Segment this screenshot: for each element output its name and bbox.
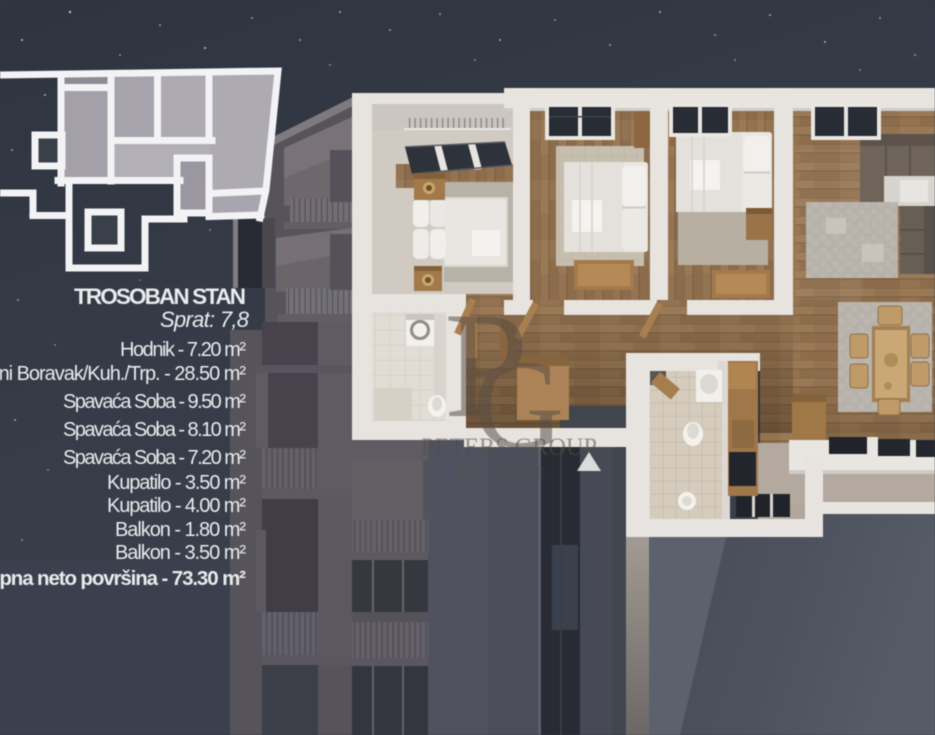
svg-text:Ukupna neto površina - 73.30 m: Ukupna neto površina - 73.30 m² <box>0 567 246 590</box>
svg-text:TROSOBAN STAN: TROSOBAN STAN <box>74 284 246 309</box>
svg-text:Balkon - 1.80 m²: Balkon - 1.80 m² <box>115 519 246 541</box>
svg-text:Sprat: 7,8: Sprat: 7,8 <box>160 307 250 332</box>
svg-text:Spavaća Soba - 7.20 m²: Spavaća Soba - 7.20 m² <box>63 447 246 469</box>
svg-text:Balkon - 3.50 m²: Balkon - 3.50 m² <box>115 542 246 564</box>
svg-text:Kupatilo - 3.50 m²: Kupatilo - 3.50 m² <box>107 472 246 494</box>
svg-text:PETERS GROUP: PETERS GROUP <box>421 434 597 461</box>
svg-text:Spavaća Soba - 8.10 m²: Spavaća Soba - 8.10 m² <box>63 419 246 441</box>
svg-text:Dnevni Boravak/Kuh./Trp. - 28: Dnevni Boravak/Kuh./Trp. - 28.50 m² <box>0 363 246 385</box>
svg-text:REAL ESTATE: REAL ESTATE <box>455 463 545 483</box>
svg-text:Kupatilo - 4.00 m²: Kupatilo - 4.00 m² <box>107 495 246 517</box>
svg-text:Hodnik - 7.20 m²: Hodnik - 7.20 m² <box>120 339 246 361</box>
svg-text:Spavaća Soba - 9.50 m²: Spavaća Soba - 9.50 m² <box>63 391 246 413</box>
